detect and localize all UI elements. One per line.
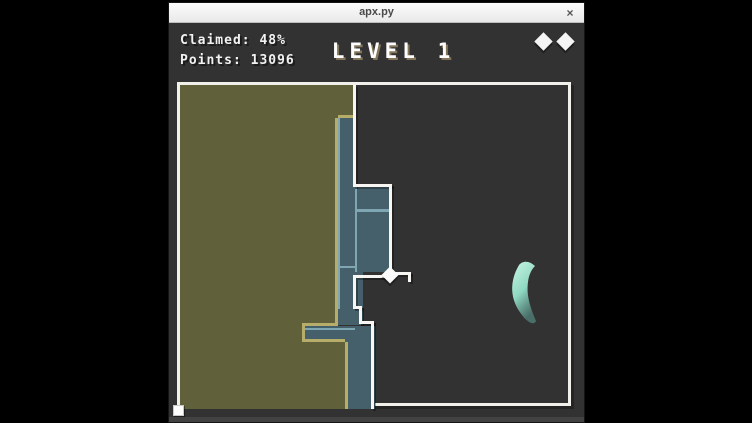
lives bbox=[537, 35, 572, 48]
trail-border-segment bbox=[338, 118, 340, 269]
claimed-border-segment bbox=[345, 342, 348, 409]
path-segment bbox=[353, 278, 356, 308]
trail-border-segment bbox=[338, 266, 356, 268]
corner-marker bbox=[173, 405, 184, 416]
level-title: LEVEL 1 bbox=[169, 39, 584, 63]
game-area[interactable]: Claimed: 48% Points: 13096 LEVEL 1 bbox=[169, 24, 584, 422]
trail-border-segment bbox=[338, 269, 340, 309]
enemy-qix-icon bbox=[505, 260, 550, 335]
trail-region bbox=[356, 184, 392, 272]
window-bottom-edge bbox=[169, 417, 584, 422]
claimed-border-segment bbox=[302, 326, 305, 339]
trail-border-segment bbox=[305, 328, 355, 330]
trail-border-segment bbox=[357, 209, 389, 212]
window: apx.py × Claimed: 48% Points: 13096 LEVE… bbox=[168, 2, 585, 423]
path-segment bbox=[353, 85, 356, 187]
screen: apx.py × Claimed: 48% Points: 13096 LEVE… bbox=[0, 0, 752, 423]
claimed-border-segment bbox=[302, 323, 338, 326]
path-segment bbox=[408, 272, 411, 282]
path-segment bbox=[353, 184, 392, 187]
close-icon[interactable]: × bbox=[562, 5, 578, 21]
trail-border-segment bbox=[355, 187, 357, 272]
path-segment bbox=[371, 321, 374, 409]
title-bar[interactable]: apx.py × bbox=[169, 3, 584, 23]
claimed-border-segment bbox=[335, 118, 338, 326]
claimed-border-segment bbox=[302, 339, 345, 342]
life-diamond-icon bbox=[556, 32, 574, 50]
play-field[interactable] bbox=[177, 82, 571, 406]
life-diamond-icon bbox=[534, 32, 552, 50]
window-title: apx.py bbox=[169, 6, 584, 18]
path-segment bbox=[389, 184, 392, 275]
